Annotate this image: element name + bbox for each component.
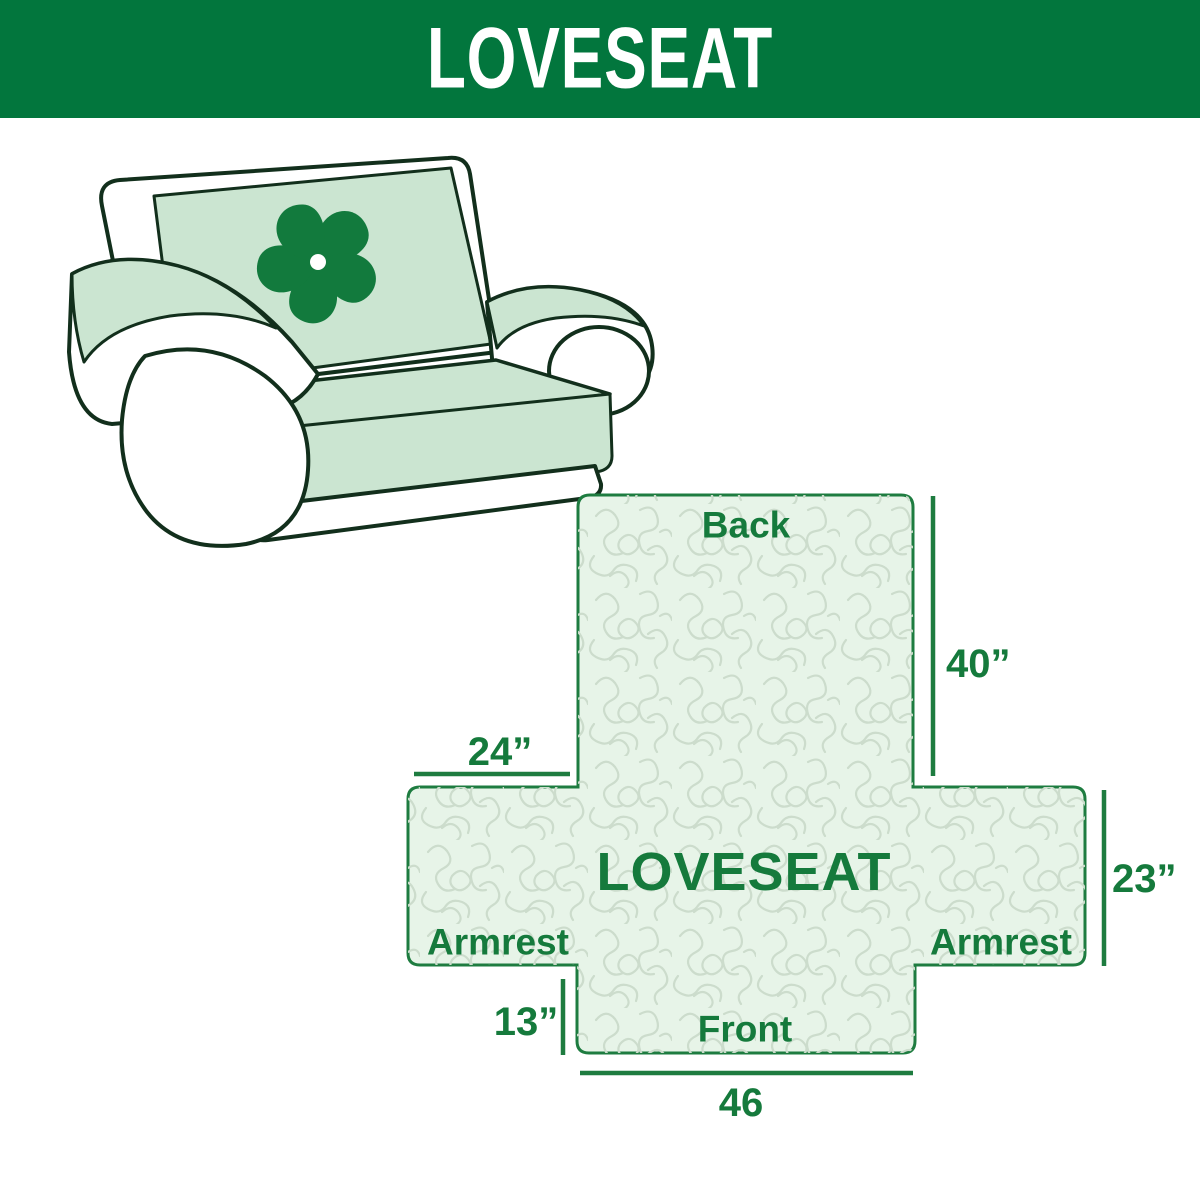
back-label: Back [702, 507, 790, 544]
back-height-dimension: 40” [946, 644, 1011, 684]
armrest-height-dimension: 23” [1112, 859, 1177, 899]
cover-center-label: LOVESEAT [596, 845, 891, 899]
armrest-left-label: Armrest [427, 924, 569, 961]
front-label: Front [698, 1011, 793, 1048]
page: LOVESEAT [0, 0, 1200, 1200]
cover-dimension-diagram [0, 0, 1200, 1200]
armrest-width-dimension: 24” [468, 732, 533, 772]
front-drop-dimension: 13” [494, 1002, 559, 1042]
front-width-dimension: 46 [719, 1083, 764, 1123]
armrest-right-label: Armrest [930, 924, 1072, 961]
